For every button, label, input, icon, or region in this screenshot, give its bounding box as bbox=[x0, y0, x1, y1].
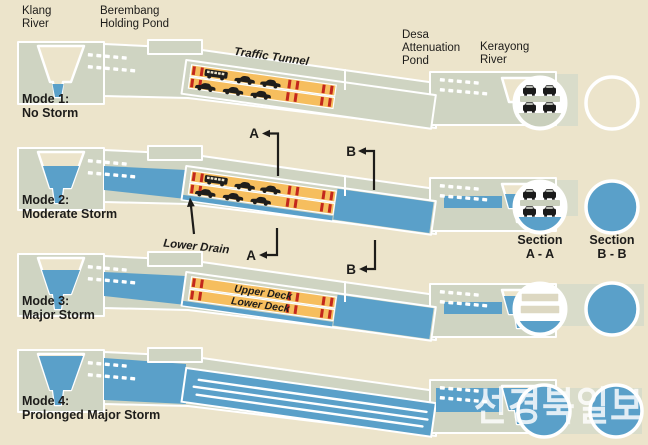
mode-1-condition: No Storm bbox=[22, 106, 78, 120]
arrow-left-icon bbox=[359, 265, 367, 273]
section-aa-mode-1 bbox=[514, 77, 566, 131]
section-aa-label: A - A bbox=[526, 247, 554, 261]
section-bb-label: B - B bbox=[597, 247, 626, 261]
mode-1-title: Mode 1: bbox=[22, 92, 69, 106]
desa-pond-label: Pond bbox=[402, 55, 429, 67]
intake-gate bbox=[148, 146, 202, 160]
mode-3-condition: Major Storm bbox=[22, 308, 95, 322]
mode-4-title: Mode 4: bbox=[22, 394, 69, 408]
watermark-text: 선경북일보 bbox=[474, 385, 644, 429]
marker-a-bottom-line bbox=[267, 228, 277, 255]
mode-2-condition: Moderate Storm bbox=[22, 207, 117, 221]
marker-b-top: B bbox=[346, 144, 356, 159]
arrow-left-icon bbox=[262, 130, 270, 138]
mode-2-row bbox=[18, 146, 638, 235]
section-bb-mode-2 bbox=[586, 181, 638, 233]
section-bb-mode-3 bbox=[586, 283, 638, 335]
marker-b-bottom: B bbox=[346, 262, 356, 277]
mode-3-row: Upper Deck Lower Deck bbox=[18, 252, 644, 341]
desa-pond-label: Desa bbox=[402, 29, 429, 41]
klang-river-label: River bbox=[22, 18, 49, 30]
kerayong-river-label: River bbox=[480, 54, 507, 66]
kerayong-river-label: Kerayong bbox=[480, 41, 529, 53]
section-aa-label: Section bbox=[517, 233, 562, 247]
intake-gate bbox=[148, 252, 202, 266]
lower-drain-arrow-line bbox=[191, 206, 194, 234]
desa-pond-label: Attenuation bbox=[402, 42, 460, 54]
intake-gate bbox=[148, 348, 202, 362]
marker-b-bottom-line bbox=[367, 240, 375, 269]
arrow-left-icon bbox=[259, 251, 267, 259]
marker-a-bottom: A bbox=[246, 248, 256, 263]
mode-3-title: Mode 3: bbox=[22, 294, 69, 308]
section-labels: Section A - A Section B - B bbox=[517, 233, 634, 261]
section-aa-mode-3 bbox=[514, 283, 566, 337]
klang-river-label: Klang bbox=[22, 5, 51, 17]
mode-4-condition: Prolonged Major Storm bbox=[22, 408, 160, 422]
smart-tunnel-modes-diagram: Upper Deck Lower Deck bbox=[0, 0, 648, 445]
mode-1-row bbox=[18, 40, 638, 131]
berembang-pond-label: Holding Pond bbox=[100, 18, 169, 30]
section-aa-mode-2 bbox=[514, 181, 566, 235]
section-bb-mode-1 bbox=[586, 77, 638, 129]
section-bb-label: Section bbox=[589, 233, 634, 247]
marker-a-top: A bbox=[249, 126, 259, 141]
intake-gate bbox=[148, 40, 202, 54]
berembang-pond-label: Berembang bbox=[100, 5, 159, 17]
mode-2-title: Mode 2: bbox=[22, 193, 69, 207]
diagram-canvas: Upper Deck Lower Deck bbox=[0, 0, 648, 445]
arrow-left-icon bbox=[358, 147, 366, 155]
